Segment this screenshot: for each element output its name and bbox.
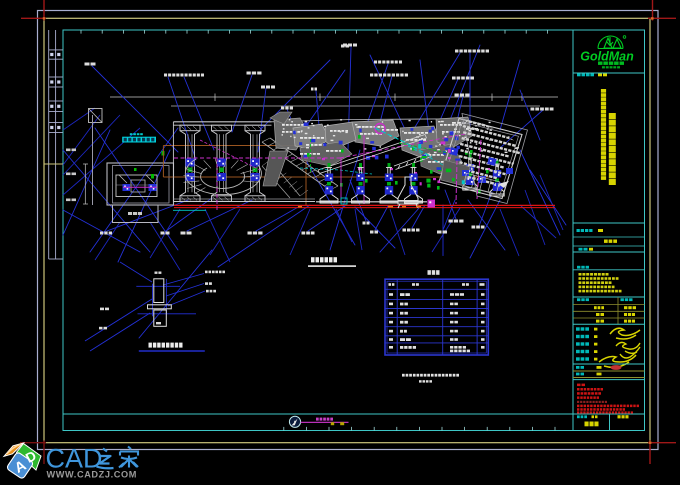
svg-text:WWW.CADZJ.COM: WWW.CADZJ.COM — [47, 470, 137, 480]
svg-text:GoldMan: GoldMan — [580, 50, 634, 64]
